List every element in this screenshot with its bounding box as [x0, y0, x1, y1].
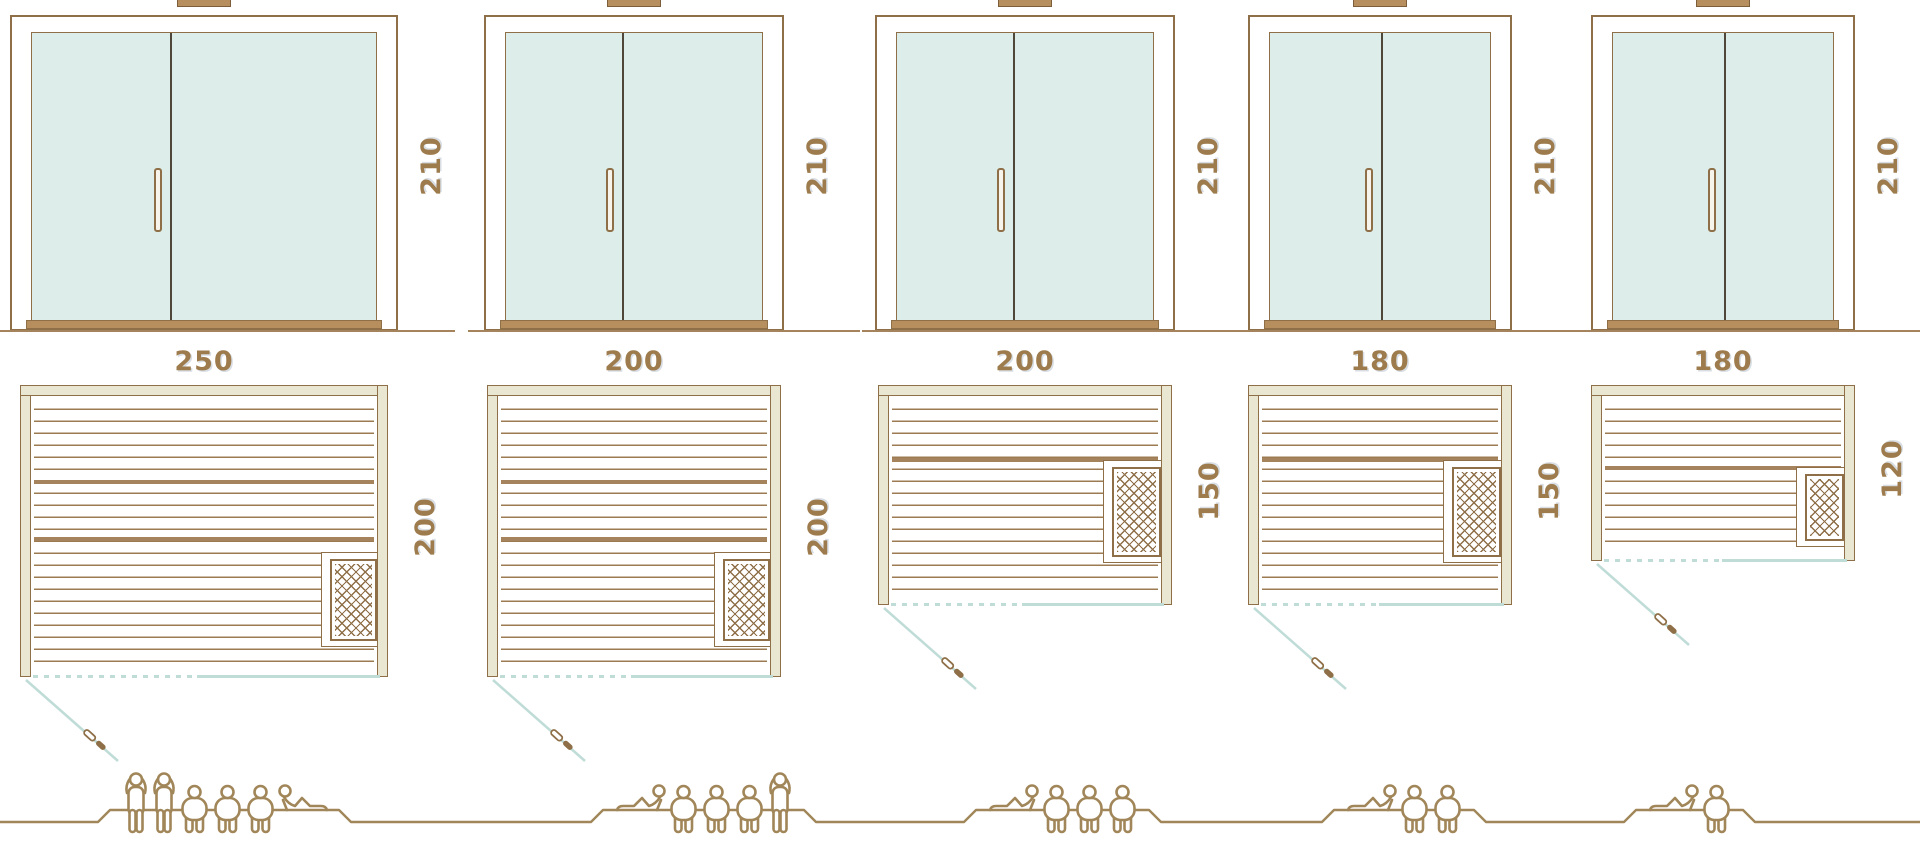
capacity-group — [990, 786, 1135, 833]
door-top-cap — [998, 0, 1052, 7]
door-handle-icon — [1708, 168, 1716, 232]
door-height-dimension: 210 — [417, 126, 447, 206]
heater-icon — [1112, 467, 1161, 557]
plan-depth-dimension: 200 — [411, 487, 441, 567]
person-standing-icon — [154, 774, 173, 833]
bench-edge-line — [501, 537, 767, 541]
plan-interior — [1601, 395, 1845, 561]
door-opening-dashed-line — [1261, 603, 1377, 606]
plan-wall-left — [878, 385, 889, 605]
door-height-dimension: 210 — [1194, 126, 1224, 206]
plan-width-dimension: 250 — [164, 347, 244, 377]
door-opening-dashed-line — [1604, 559, 1720, 562]
bench-slats — [1605, 398, 1841, 548]
capacity-group — [1348, 786, 1460, 833]
bench-slats — [892, 398, 1158, 592]
plan-wall-left — [1591, 385, 1602, 561]
heater-area — [1443, 460, 1501, 563]
plan-width-dimension: 180 — [1683, 347, 1763, 377]
person-standing-icon — [770, 774, 789, 833]
sauna-size-column: 210 180 120 — [0, 0, 1920, 856]
plan-depth-dimension: 150 — [1195, 451, 1225, 531]
elevation-ground-line — [1240, 330, 1588, 332]
person-lying-icon — [1650, 786, 1698, 811]
person-sitting-icon — [1403, 786, 1427, 832]
plan-interior — [497, 395, 771, 677]
heater-icon — [330, 559, 377, 641]
person-sitting-icon — [1705, 786, 1729, 832]
plan-interior — [30, 395, 378, 677]
door-top-cap — [1696, 0, 1750, 7]
bench-edge-line — [1605, 466, 1841, 470]
door-swing-icon — [1595, 562, 1705, 654]
plan-wall-back — [20, 385, 388, 396]
bench-edge-line — [34, 480, 374, 484]
capacity-group — [617, 774, 790, 833]
person-lying-icon — [1348, 786, 1396, 811]
door-glass-panels — [896, 32, 1154, 322]
plan-depth-dimension: 120 — [1878, 429, 1908, 509]
plan-wall-left — [1248, 385, 1259, 605]
heater-area — [1796, 467, 1844, 547]
heater-icon — [1452, 467, 1501, 557]
person-standing-icon — [126, 774, 145, 833]
plan-depth-dimension: 150 — [1535, 451, 1565, 531]
plan-wall-right — [1844, 385, 1855, 561]
floor-plan — [1248, 385, 1512, 605]
floor-plan — [878, 385, 1172, 605]
plan-wall-right — [1501, 385, 1512, 605]
door-glass-panels — [31, 32, 377, 322]
person-sitting-icon — [1078, 786, 1102, 832]
door-top-cap — [1353, 0, 1407, 7]
sauna-size-column: 210 200 200 — [0, 0, 1920, 856]
plan-width-dimension: 180 — [1340, 347, 1420, 377]
person-sitting-icon — [249, 786, 273, 832]
person-sitting-icon — [738, 786, 762, 832]
bench-edge-line — [34, 537, 374, 541]
door-elevation — [1248, 15, 1512, 331]
person-lying-icon — [280, 786, 328, 811]
heater-mesh — [335, 564, 372, 636]
door-height-dimension: 210 — [1531, 126, 1561, 206]
door-glass-panels — [1269, 32, 1491, 322]
heater-icon — [1805, 474, 1844, 541]
door-sill — [26, 320, 382, 329]
sauna-sizes-diagram: 210 250 200 — [0, 0, 1920, 856]
door-swing-icon — [24, 678, 134, 770]
heater-mesh — [1457, 472, 1496, 552]
door-top-cap — [607, 0, 661, 7]
bench-edge-line — [501, 480, 767, 484]
plan-wall-left — [487, 385, 498, 677]
person-sitting-icon — [183, 786, 207, 832]
door-opening-dashed-line — [500, 675, 629, 678]
person-sitting-icon — [1045, 786, 1069, 832]
door-sill — [891, 320, 1159, 329]
door-swing-icon — [491, 678, 601, 770]
plan-wall-back — [487, 385, 781, 396]
door-leaf-divider — [170, 33, 172, 321]
door-handle-icon — [606, 168, 614, 232]
door-sill — [1264, 320, 1496, 329]
person-sitting-icon — [705, 786, 729, 832]
door-height-dimension: 210 — [803, 126, 833, 206]
capacity-ground-strip — [0, 760, 1920, 856]
heater-area — [714, 552, 770, 647]
sauna-size-column: 210 200 150 — [0, 0, 1920, 856]
door-glass-panels — [505, 32, 763, 322]
door-elevation — [1591, 15, 1855, 331]
floor-plan — [20, 385, 388, 677]
glass-wall-line — [1379, 603, 1504, 606]
elevation-ground-line — [468, 330, 860, 332]
elevation-ground-line — [1580, 330, 1920, 332]
heater-icon — [723, 559, 770, 641]
heater-mesh — [728, 564, 765, 636]
glass-wall-line — [631, 675, 773, 678]
door-opening-dashed-line — [33, 675, 195, 678]
sauna-size-column: 210 180 150 — [0, 0, 1920, 856]
heater-area — [1103, 460, 1161, 563]
door-leaf-divider — [622, 33, 624, 321]
sauna-size-column: 210 250 200 — [0, 0, 1920, 856]
door-handle-icon — [997, 168, 1005, 232]
door-handle-icon — [1365, 168, 1373, 232]
capacity-group — [126, 774, 327, 833]
ground-profile-line — [0, 810, 1920, 822]
person-sitting-icon — [1111, 786, 1135, 832]
person-sitting-icon — [1436, 786, 1460, 832]
bench-slats — [1262, 398, 1498, 592]
door-height-dimension: 210 — [1874, 126, 1904, 206]
plan-width-dimension: 200 — [594, 347, 674, 377]
door-opening-dashed-line — [891, 603, 1020, 606]
plan-wall-back — [1248, 385, 1512, 396]
plan-wall-left — [20, 385, 31, 677]
bench-edge-line — [892, 458, 1158, 462]
door-leaf-divider — [1013, 33, 1015, 321]
plan-wall-right — [770, 385, 781, 677]
plan-depth-dimension: 200 — [804, 487, 834, 567]
bench-edge-line — [1262, 458, 1498, 462]
plan-width-dimension: 200 — [985, 347, 1065, 377]
person-lying-icon — [990, 786, 1038, 811]
door-handle-icon — [154, 168, 162, 232]
person-lying-icon — [617, 786, 665, 811]
door-swing-icon — [882, 606, 992, 698]
glass-wall-line — [1022, 603, 1164, 606]
plan-wall-back — [878, 385, 1172, 396]
door-leaf-divider — [1381, 33, 1383, 321]
elevation-ground-line — [862, 330, 1252, 332]
floor-plan — [1591, 385, 1855, 561]
door-leaf-divider — [1724, 33, 1726, 321]
door-sill — [1607, 320, 1839, 329]
door-elevation — [875, 15, 1175, 331]
door-elevation — [10, 15, 398, 331]
floor-plan — [487, 385, 781, 677]
door-sill — [500, 320, 768, 329]
heater-mesh — [1810, 479, 1839, 536]
heater-area — [321, 552, 377, 647]
glass-wall-line — [197, 675, 380, 678]
plan-wall-right — [1161, 385, 1172, 605]
bench-slats — [501, 398, 767, 664]
bench-slats — [34, 398, 374, 664]
glass-wall-line — [1722, 559, 1847, 562]
capacity-group — [1650, 786, 1729, 833]
plan-interior — [1258, 395, 1502, 605]
door-glass-panels — [1612, 32, 1834, 322]
door-elevation — [484, 15, 784, 331]
door-swing-icon — [1252, 606, 1362, 698]
door-top-cap — [177, 0, 231, 7]
elevation-ground-line — [0, 330, 455, 332]
plan-interior — [888, 395, 1162, 605]
heater-mesh — [1117, 472, 1156, 552]
person-sitting-icon — [672, 786, 696, 832]
plan-wall-right — [377, 385, 388, 677]
plan-wall-back — [1591, 385, 1855, 396]
person-sitting-icon — [216, 786, 240, 832]
